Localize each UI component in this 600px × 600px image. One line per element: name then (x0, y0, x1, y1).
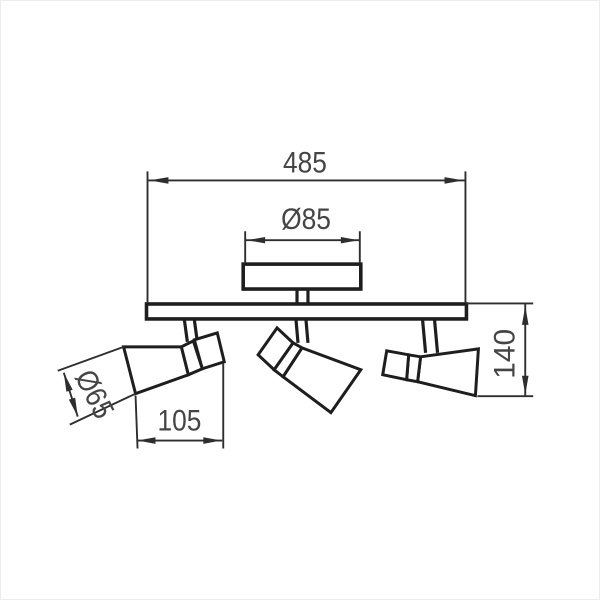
arrowhead-105-left (138, 437, 156, 444)
arrowhead-140-bottom (522, 376, 529, 395)
mounting-bar (147, 304, 467, 319)
spot-head-middle (258, 320, 361, 413)
spotlight-dimension-diagram: 485 Ø85 Ø65 105 (1, 1, 599, 599)
arrowhead-85-left (247, 237, 265, 243)
label-canopy-diameter: Ø85 (281, 203, 331, 236)
spot-rear-cap-right (383, 351, 409, 380)
arrowhead-65-bottom (69, 398, 78, 417)
label-head-length: 105 (157, 405, 201, 438)
fixture (124, 264, 479, 413)
arrowhead-85-right (341, 237, 359, 243)
technical-drawing-canvas: 485 Ø85 Ø65 105 (0, 0, 600, 600)
arrowhead-105-right (203, 437, 221, 444)
extension-lines-485 (148, 171, 466, 303)
spot-stem-right (423, 320, 438, 353)
arrowhead-485-right (445, 177, 464, 184)
arrowhead-140-top (522, 306, 529, 325)
dimension-canopy-diameter: Ø85 (245, 203, 360, 263)
label-overall-width: 485 (283, 146, 327, 179)
label-head-diameter: Ø65 (68, 365, 120, 424)
canopy-stem (297, 289, 308, 303)
spot-stem-middle (296, 320, 308, 343)
spot-cone-left (124, 347, 189, 394)
dimension-head-diameter: Ø65 (58, 347, 136, 425)
canopy (243, 264, 361, 289)
spot-head-right (383, 320, 479, 396)
label-fixture-height: 140 (488, 329, 521, 379)
spot-head-left (124, 320, 225, 394)
arrowhead-485-left (150, 177, 169, 184)
spot-cone-right (418, 349, 479, 396)
